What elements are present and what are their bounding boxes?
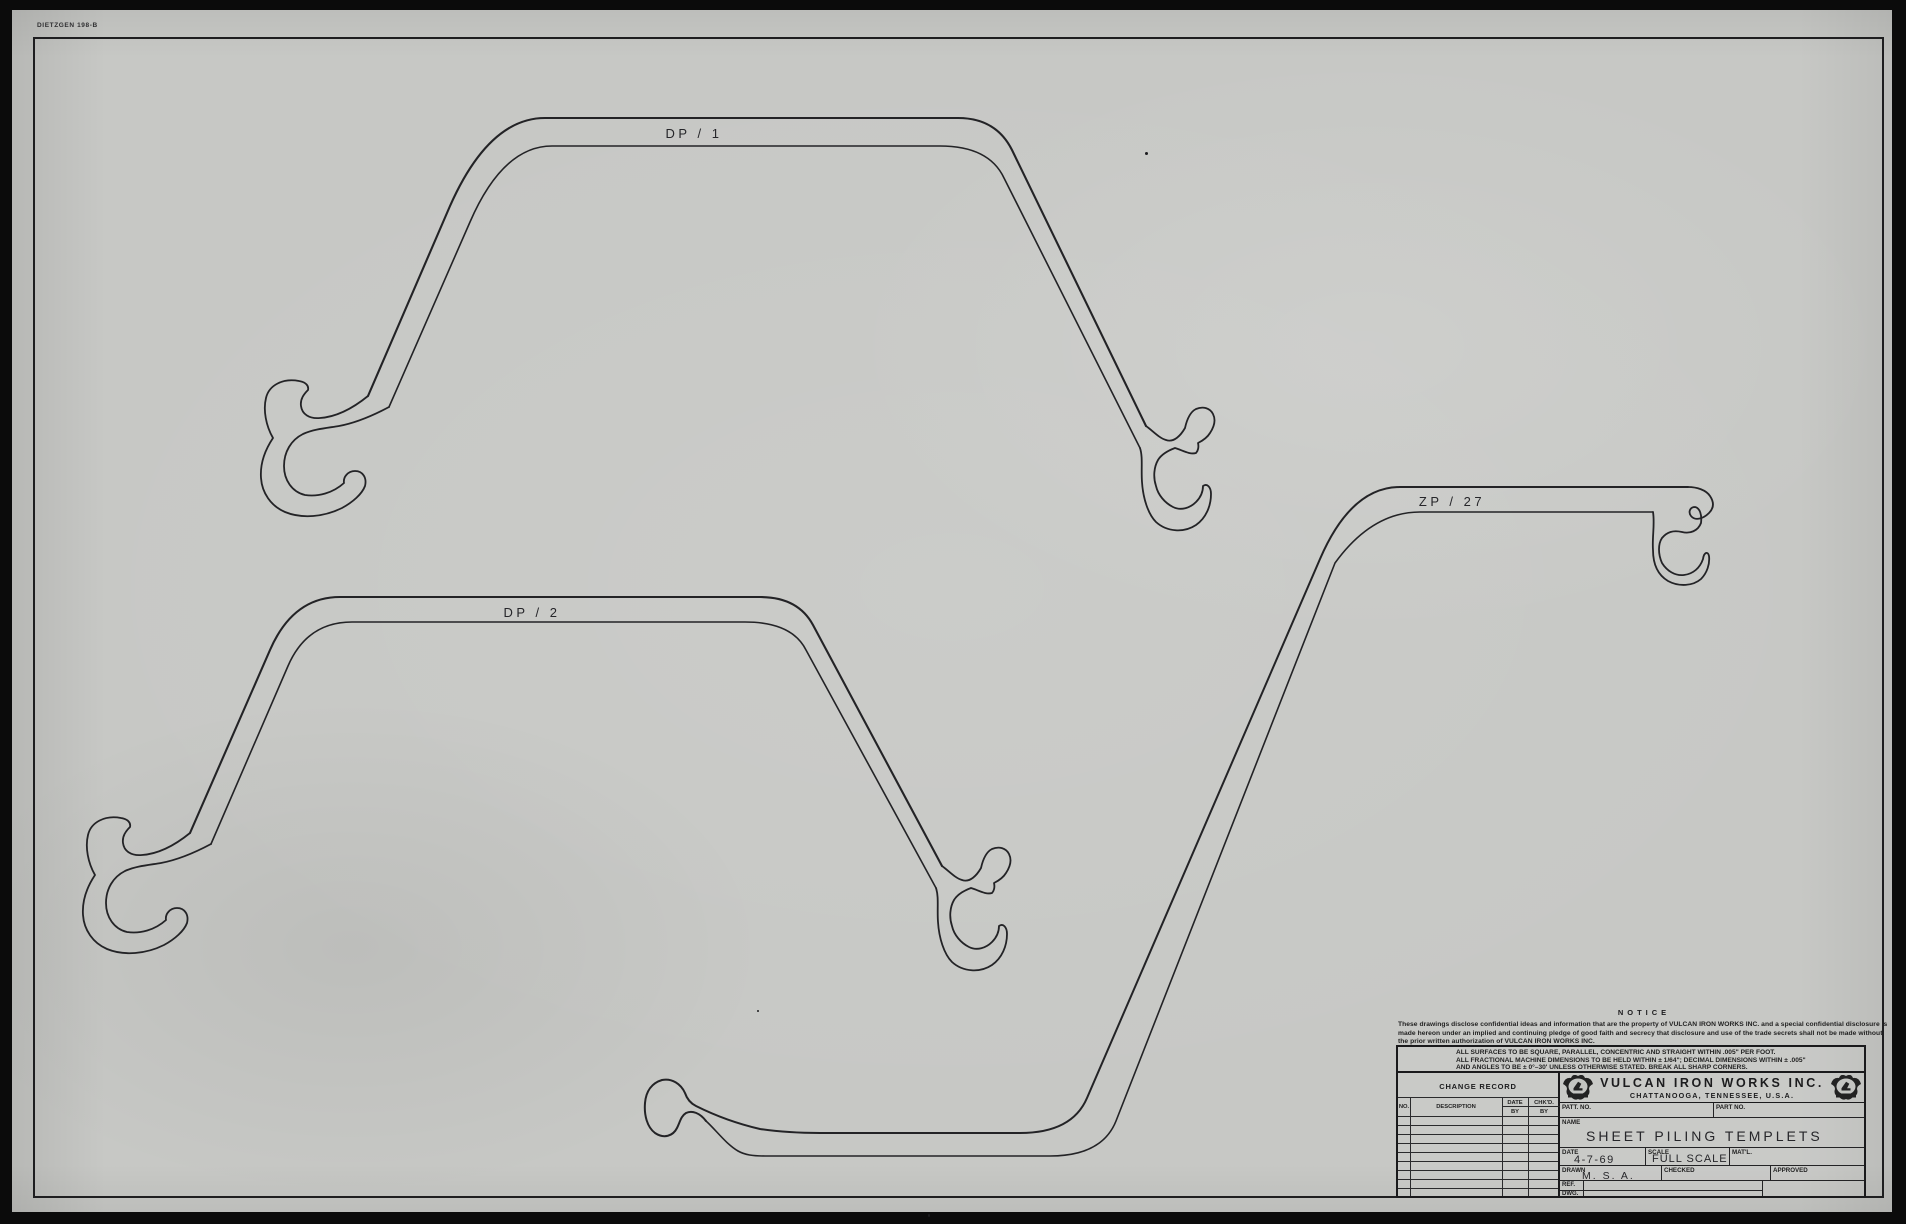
change-record-rows bbox=[1398, 1117, 1558, 1196]
change-record-empty-row bbox=[1398, 1126, 1558, 1135]
dp2-inner-line bbox=[211, 622, 936, 888]
patt-no-label: PATT. NO. bbox=[1562, 1104, 1591, 1111]
ref-dwg-row: REF. DWG. bbox=[1560, 1180, 1864, 1196]
name-label: NAME bbox=[1562, 1119, 1580, 1126]
speck bbox=[1145, 152, 1148, 155]
change-record-header: NO. DESCRIPTION DATE BY CHK'D. BY bbox=[1398, 1098, 1558, 1117]
bottom-row-divider bbox=[1762, 1181, 1763, 1196]
dp1-outer-line bbox=[368, 118, 1146, 426]
col-date: DATE bbox=[1502, 1098, 1528, 1107]
dp1-left-interlock bbox=[261, 380, 389, 516]
dp2-outer-line bbox=[190, 597, 942, 866]
change-record-empty-row bbox=[1398, 1180, 1558, 1189]
change-record-empty-row bbox=[1398, 1171, 1558, 1180]
tolerance-line: ALL SURFACES TO BE SQUARE, PARALLEL, CON… bbox=[1456, 1049, 1864, 1057]
profile-dp2 bbox=[83, 597, 1011, 970]
tolerance-line: AND ANGLES TO BE ± 0°–30' UNLESS OTHERWI… bbox=[1456, 1064, 1864, 1072]
col-by: BY bbox=[1528, 1107, 1560, 1116]
speck bbox=[757, 1010, 759, 1012]
label-dp2: DP / 2 bbox=[504, 605, 561, 620]
change-record-empty-row bbox=[1398, 1153, 1558, 1162]
approved-label: APPROVED bbox=[1773, 1167, 1808, 1174]
company-name: VULCAN IRON WORKS INC. bbox=[1596, 1076, 1828, 1090]
vulcan-crest-icon bbox=[1563, 1075, 1593, 1101]
scanned-drawing-photo: DIETZGEN 198-B DP / 1 bbox=[0, 0, 1906, 1224]
col-description: DESCRIPTION bbox=[1410, 1098, 1502, 1110]
label-zp27: ZP / 27 bbox=[1419, 494, 1485, 509]
change-record-empty-row bbox=[1398, 1189, 1558, 1198]
date-scale-matl-row: DATE 4-7-69 SCALE FULL SCALE MAT'L. bbox=[1560, 1147, 1864, 1165]
profile-dp1 bbox=[261, 118, 1215, 530]
dwg-label: DWG. bbox=[1560, 1190, 1583, 1199]
change-record-empty-row bbox=[1398, 1144, 1558, 1153]
vulcan-crest-icon bbox=[1831, 1075, 1861, 1101]
name-row: NAME SHEET PILING TEMPLETS bbox=[1560, 1117, 1864, 1147]
notice-line: These drawings disclose confidential ide… bbox=[1398, 1021, 1890, 1030]
checked-label: CHECKED bbox=[1664, 1167, 1695, 1174]
drawing-title: SHEET PILING TEMPLETS bbox=[1586, 1128, 1823, 1144]
scale-value: FULL SCALE bbox=[1652, 1153, 1728, 1165]
ref-dwg-divider bbox=[1560, 1190, 1762, 1191]
col-chkd: CHK'D. bbox=[1528, 1098, 1560, 1107]
drawn-checked-approved-row: DRAWN M. S. A. CHECKED APPROVED bbox=[1560, 1165, 1864, 1180]
label-dp1: DP / 1 bbox=[666, 126, 723, 141]
ref-label: REF. bbox=[1560, 1181, 1583, 1190]
tolerance-notes: ALL SURFACES TO BE SQUARE, PARALLEL, CON… bbox=[1398, 1047, 1864, 1073]
patt-part-row: PATT. NO. PART NO. bbox=[1560, 1102, 1864, 1117]
col-no: NO. bbox=[1398, 1098, 1410, 1110]
dp1-right-interlock bbox=[1140, 408, 1214, 531]
title-block-main: VULCAN IRON WORKS INC. CHATTANOOGA, TENN… bbox=[1560, 1073, 1864, 1196]
company-header: VULCAN IRON WORKS INC. CHATTANOOGA, TENN… bbox=[1560, 1073, 1864, 1102]
change-record-table: CHANGE RECORD NO. DESCRIPTION DATE BY CH… bbox=[1398, 1073, 1560, 1196]
speck bbox=[928, 1214, 930, 1217]
zp27-right-interlock bbox=[1653, 487, 1713, 585]
dp2-left-interlock bbox=[83, 817, 211, 953]
notice-line: made hereon under an implied and continu… bbox=[1398, 1030, 1890, 1039]
part-no-label: PART NO. bbox=[1716, 1104, 1745, 1111]
change-record-title: CHANGE RECORD bbox=[1398, 1073, 1558, 1098]
title-block: ALL SURFACES TO BE SQUARE, PARALLEL, CON… bbox=[1396, 1045, 1866, 1198]
change-record-empty-row bbox=[1398, 1162, 1558, 1171]
notice-block: NOTICE These drawings disclose confident… bbox=[1398, 1008, 1890, 1047]
matl-label: MAT'L. bbox=[1732, 1149, 1752, 1156]
change-record-empty-row bbox=[1398, 1135, 1558, 1144]
notice-heading: NOTICE bbox=[1398, 1008, 1890, 1017]
company-location: CHATTANOOGA, TENNESSEE, U.S.A. bbox=[1596, 1091, 1828, 1100]
dp1-inner-line bbox=[389, 146, 1140, 448]
col-by: BY bbox=[1502, 1107, 1528, 1116]
change-record-empty-row bbox=[1398, 1117, 1558, 1126]
drawing-paper: DIETZGEN 198-B DP / 1 bbox=[12, 10, 1892, 1212]
dp2-right-interlock bbox=[936, 848, 1010, 971]
